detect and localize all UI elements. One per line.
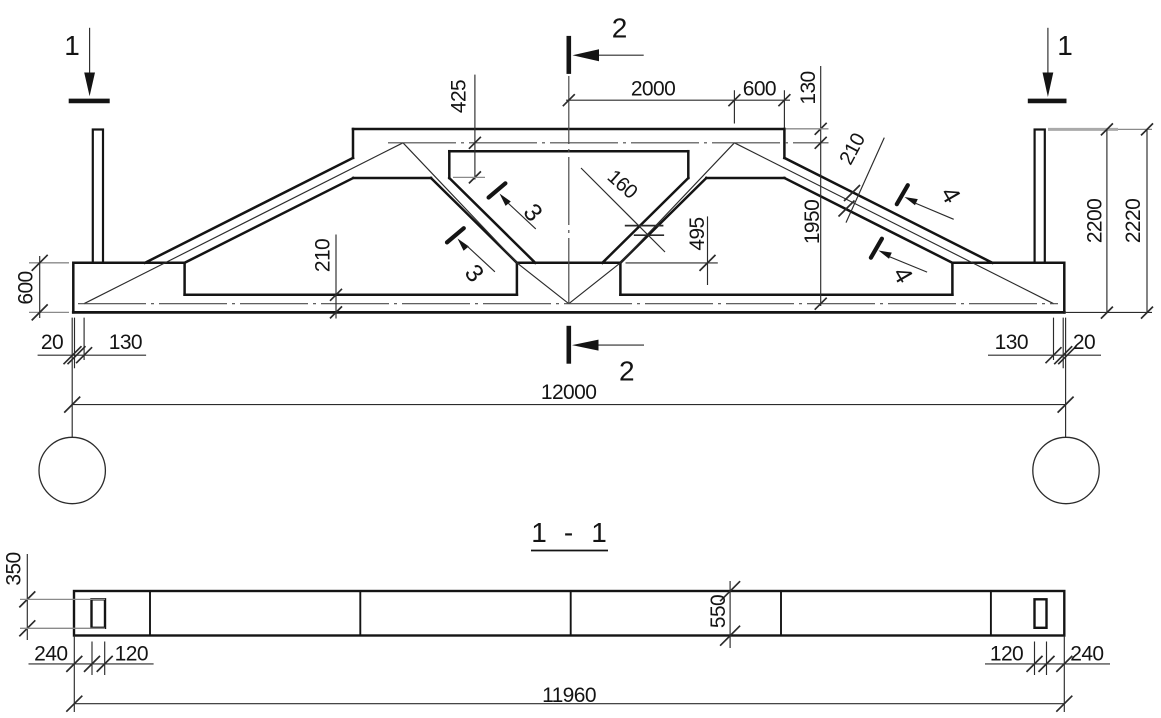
svg-text:1: 1	[591, 517, 607, 548]
svg-text:1950: 1950	[801, 200, 824, 244]
svg-text:425: 425	[448, 80, 471, 113]
svg-text:130: 130	[109, 331, 142, 354]
svg-text:1: 1	[64, 30, 80, 61]
svg-text:550: 550	[707, 595, 730, 628]
svg-text:2200: 2200	[1083, 199, 1106, 243]
svg-text:240: 240	[1070, 643, 1103, 666]
svg-text:600: 600	[14, 271, 37, 304]
svg-text:600: 600	[743, 78, 776, 101]
svg-text:130: 130	[797, 71, 820, 104]
svg-text:350: 350	[3, 552, 26, 585]
svg-text:210: 210	[311, 239, 334, 272]
svg-text:12000: 12000	[541, 381, 596, 404]
svg-text:130: 130	[995, 331, 1028, 354]
svg-text:2: 2	[619, 355, 635, 386]
svg-text:20: 20	[1073, 331, 1095, 354]
svg-text:1: 1	[531, 517, 547, 548]
svg-text:2220: 2220	[1122, 199, 1145, 243]
svg-text:2: 2	[612, 12, 628, 43]
svg-text:1: 1	[1057, 30, 1073, 61]
svg-text:2000: 2000	[631, 78, 675, 101]
svg-text:495: 495	[686, 217, 709, 250]
svg-text:120: 120	[115, 643, 148, 666]
svg-text:240: 240	[34, 643, 67, 666]
svg-text:120: 120	[990, 643, 1023, 666]
svg-text:-: -	[564, 517, 573, 548]
svg-text:20: 20	[41, 331, 63, 354]
svg-text:11960: 11960	[542, 684, 596, 707]
